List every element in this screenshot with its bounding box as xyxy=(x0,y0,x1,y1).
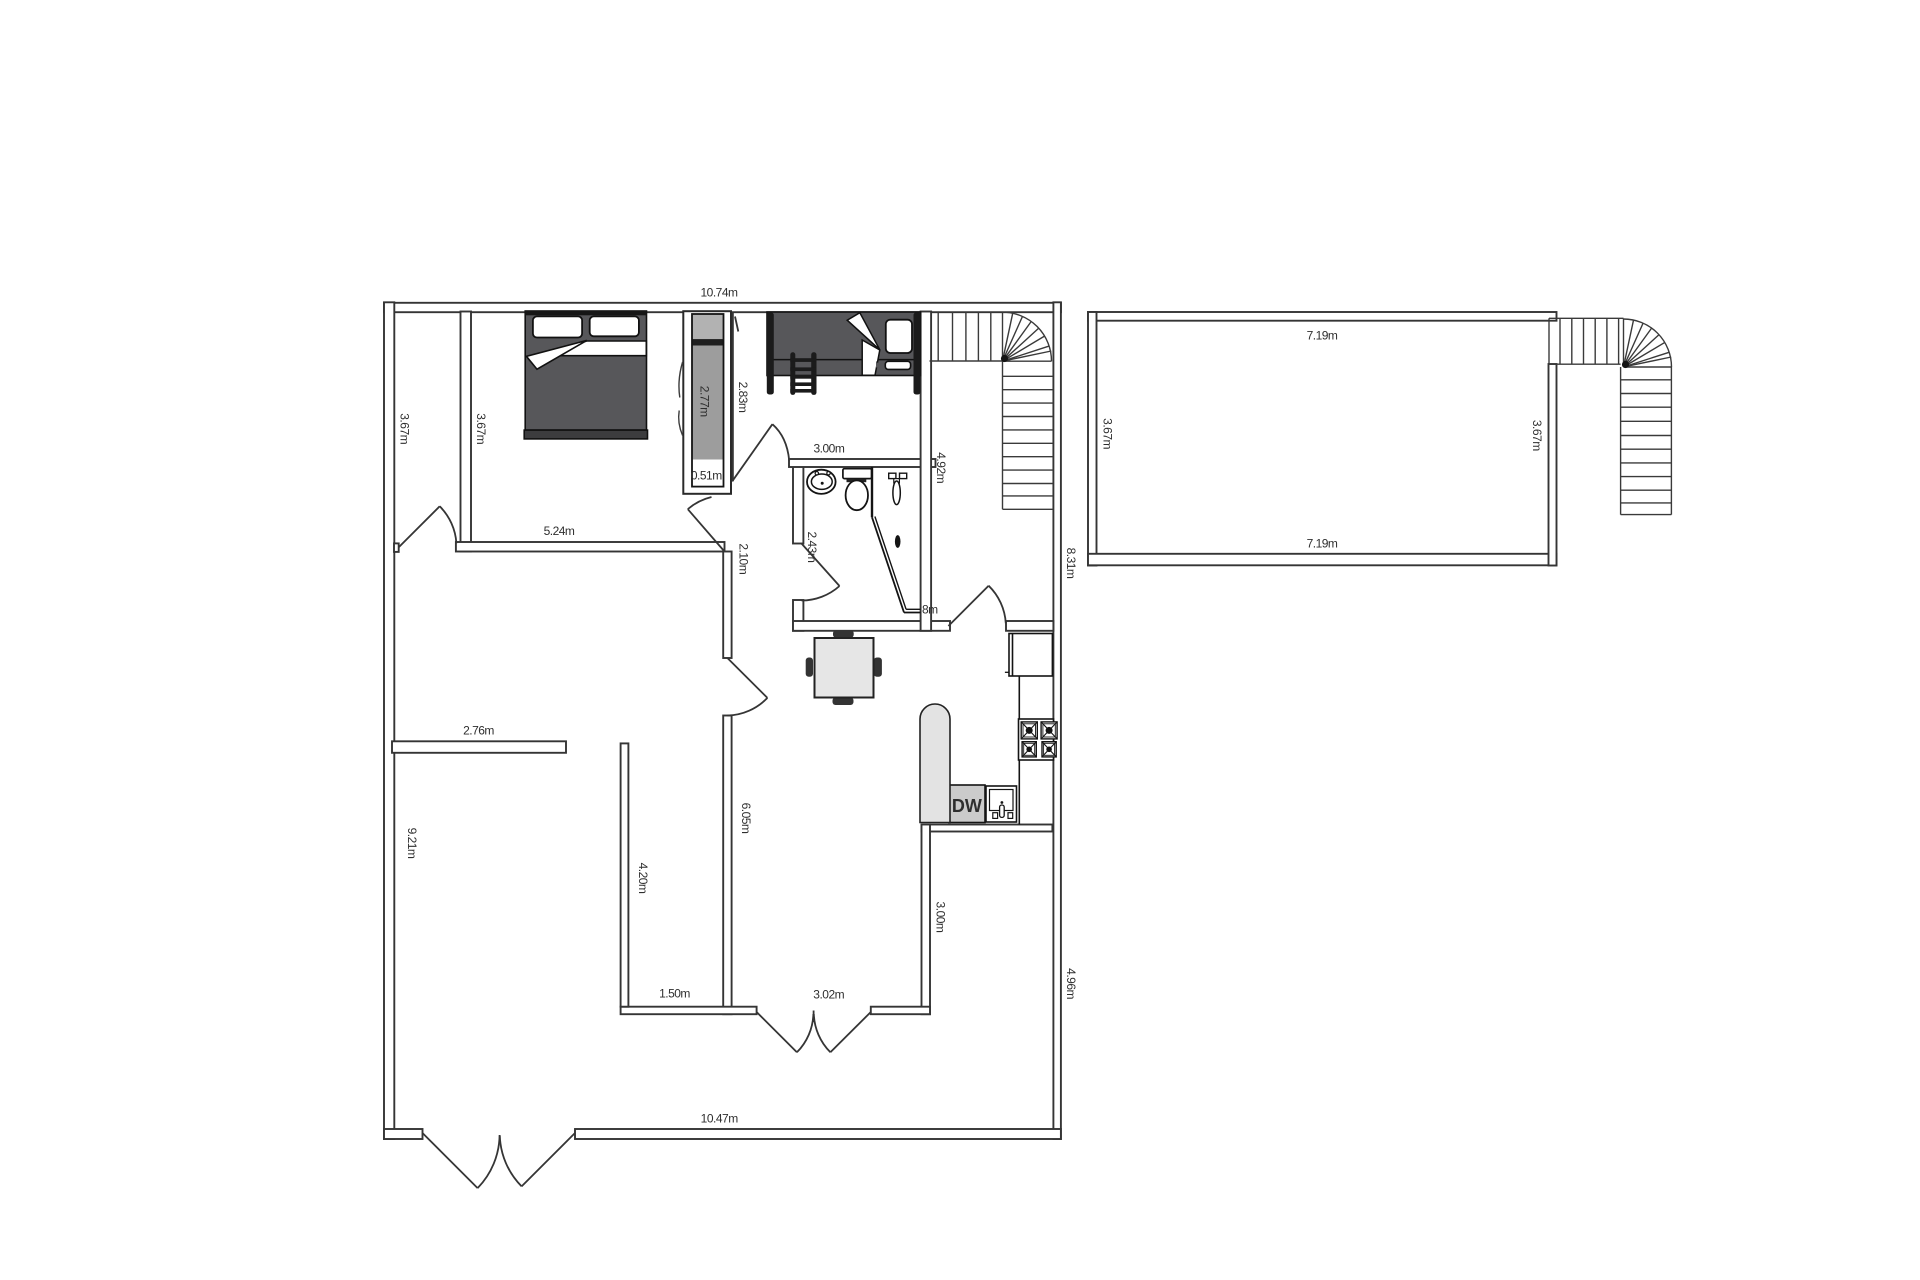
svg-text:3.02m: 3.02m xyxy=(813,988,844,1002)
svg-text:2.77m: 2.77m xyxy=(698,386,712,417)
svg-text:7.19m: 7.19m xyxy=(1307,537,1338,551)
svg-text:4.96m: 4.96m xyxy=(1064,968,1078,999)
svg-text:3.67m: 3.67m xyxy=(1100,418,1114,449)
svg-text:2.83m: 2.83m xyxy=(736,382,750,413)
svg-text:8m: 8m xyxy=(922,603,938,617)
svg-text:3.67m: 3.67m xyxy=(398,413,412,444)
svg-text:0.51m: 0.51m xyxy=(691,469,722,483)
svg-text:2.10m: 2.10m xyxy=(737,543,751,574)
svg-text:2.43m: 2.43m xyxy=(805,531,819,562)
svg-text:4.20m: 4.20m xyxy=(636,863,650,894)
svg-text:DW: DW xyxy=(952,796,982,816)
svg-text:7.19m: 7.19m xyxy=(1307,329,1338,343)
svg-text:3.67m: 3.67m xyxy=(1530,420,1544,451)
svg-text:1.50m: 1.50m xyxy=(659,987,690,1001)
svg-text:9.21m: 9.21m xyxy=(405,828,419,859)
svg-text:5.24m: 5.24m xyxy=(544,524,575,538)
svg-text:3.67m: 3.67m xyxy=(474,413,488,444)
svg-text:3.00m: 3.00m xyxy=(813,442,844,456)
svg-text:4.92m: 4.92m xyxy=(934,452,948,483)
svg-text:8.31m: 8.31m xyxy=(1064,548,1078,579)
svg-text:10.74m: 10.74m xyxy=(700,286,738,300)
svg-text:10.47m: 10.47m xyxy=(701,1112,739,1126)
svg-text:6.05m: 6.05m xyxy=(739,803,753,834)
svg-text:3.00m: 3.00m xyxy=(934,902,948,933)
svg-text:2.76m: 2.76m xyxy=(463,724,494,738)
